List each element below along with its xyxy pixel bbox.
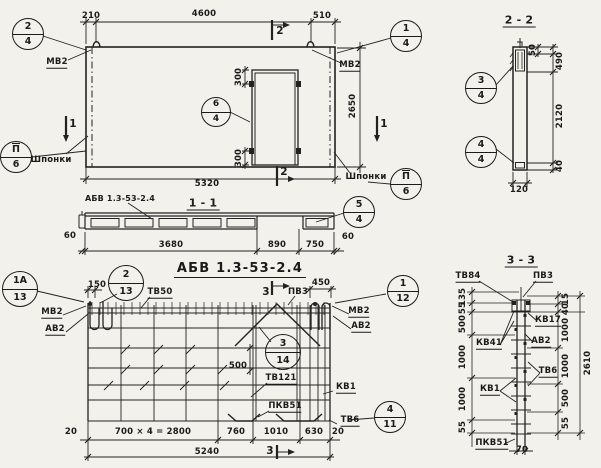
dim-60-left: 60 bbox=[64, 232, 76, 241]
label-kv41: КВ41 bbox=[476, 339, 502, 350]
balloon-3-4: 34 bbox=[465, 72, 497, 104]
section-mark-2-bottom: 2 bbox=[280, 167, 288, 178]
dim-750: 750 bbox=[306, 241, 324, 250]
label-mv2-right: МВ2 bbox=[339, 61, 360, 72]
dim-left-500: 500 bbox=[459, 315, 468, 333]
dim-210: 210 bbox=[82, 12, 100, 21]
section11-linework bbox=[78, 203, 344, 255]
dim-2650: 2650 bbox=[349, 94, 358, 118]
balloon-4-11: 411 bbox=[374, 401, 406, 433]
dim-450: 450 bbox=[312, 279, 330, 288]
label-shponki-left: Шпонки bbox=[30, 156, 71, 165]
label-kv1-33: КВ1 bbox=[480, 385, 500, 396]
section11-title: 1 - 1 bbox=[187, 198, 220, 211]
dim-1010: 1010 bbox=[264, 428, 288, 437]
balloon-1-4: 14 bbox=[390, 20, 422, 52]
balloon-2-4: 24 bbox=[12, 18, 44, 50]
dim-500: 500 bbox=[229, 362, 247, 371]
section22-linework bbox=[496, 38, 558, 187]
balloon-5-4: 54 bbox=[343, 196, 375, 228]
label-tv6-33: ТВ6 bbox=[539, 367, 558, 378]
drawing-title: АБВ 1.3-53-2.4 bbox=[174, 262, 306, 278]
dim-right-40: 40 bbox=[562, 303, 571, 315]
dim-300-bottom: 300 bbox=[235, 149, 244, 167]
balloon-1-12: 112 bbox=[387, 275, 419, 307]
dim-510: 510 bbox=[313, 12, 331, 21]
label-pv3-33: ПВ3 bbox=[533, 272, 553, 283]
dim-890: 890 bbox=[268, 241, 286, 250]
label-kv1-plan: КВ1 bbox=[336, 383, 356, 394]
section-mark-1-left: 1 bbox=[69, 119, 77, 130]
linework-svg bbox=[0, 0, 601, 468]
label-av2-33: АВ2 bbox=[531, 337, 551, 348]
drawing-sheet: 210 4600 510 2 2 1 1 МВ2 МВ2 300 300 265… bbox=[0, 0, 601, 468]
label-mv2-reinf-left: МВ2 bbox=[41, 308, 62, 319]
dim-4600: 4600 bbox=[192, 10, 216, 19]
dim-70: 70 bbox=[516, 446, 528, 455]
section-mark-1-right: 1 bbox=[380, 119, 388, 130]
dim-5320: 5320 bbox=[195, 180, 219, 189]
label-pkv51-33: ПКВ51 bbox=[475, 439, 508, 450]
label-shponki-right: Шпонки bbox=[345, 173, 386, 182]
section-mark-2-top: 2 bbox=[276, 26, 284, 37]
label-tv121: ТВ121 bbox=[265, 374, 296, 385]
label-tv6-plan: ТВ6 bbox=[341, 416, 360, 427]
dim-left-55b: 55 bbox=[459, 421, 468, 433]
balloon-6-4: 64 bbox=[201, 97, 231, 127]
label-tv50: ТВ50 bbox=[148, 288, 173, 299]
dim-right-1000b: 1000 bbox=[562, 354, 571, 378]
balloon-2-13: 213 bbox=[108, 265, 144, 301]
dim-2610-total: 2610 bbox=[584, 351, 593, 375]
dim-20-right: 20 bbox=[332, 428, 344, 437]
dim-60-right: 60 bbox=[342, 233, 354, 242]
dim-700x4: 700 × 4 = 2800 bbox=[115, 428, 191, 437]
dim-20-left: 20 bbox=[65, 428, 77, 437]
label-tv84: ТВ84 bbox=[456, 272, 481, 283]
label-pv3: ПВ3 bbox=[288, 288, 308, 297]
balloon-p-6-right: П6 bbox=[390, 168, 422, 200]
section-mark-3-bottom: 3 bbox=[266, 446, 274, 457]
dim-630: 630 bbox=[305, 428, 323, 437]
label-av2-reinf-left: АВ2 bbox=[45, 325, 65, 336]
label-kv17: КВ17 bbox=[535, 316, 561, 327]
balloon-p-6-left: П6 bbox=[0, 141, 32, 173]
dim-right-55: 55 bbox=[562, 417, 571, 429]
dim-left-1000a: 1000 bbox=[459, 345, 468, 369]
balloon-3-14: 314 bbox=[265, 334, 301, 370]
label-mv2-reinf-right: МВ2 bbox=[348, 307, 369, 318]
balloon-4-4: 44 bbox=[465, 136, 497, 168]
label-av2-reinf-right: АВ2 bbox=[351, 322, 371, 333]
beam-label: АБВ 1.3-53-2.4 bbox=[85, 195, 155, 203]
dim-50: 50 bbox=[529, 44, 538, 56]
dim-left-55a: 55 bbox=[459, 302, 468, 314]
balloon-1a-13: 1А13 bbox=[2, 271, 38, 307]
label-mv2-left: МВ2 bbox=[46, 58, 67, 69]
label-pkv51-plan: ПКВ51 bbox=[268, 402, 301, 413]
dim-5240: 5240 bbox=[195, 448, 219, 457]
dim-300-top: 300 bbox=[235, 68, 244, 86]
dim-left-1000b: 1000 bbox=[459, 387, 468, 411]
section33-title: 3 - 3 bbox=[505, 255, 538, 268]
dim-120: 120 bbox=[510, 186, 528, 195]
dim-490: 490 bbox=[556, 52, 565, 70]
dim-40: 40 bbox=[556, 160, 565, 172]
dim-3680: 3680 bbox=[159, 241, 183, 250]
section22-title: 2 - 2 bbox=[503, 15, 536, 28]
section-mark-3-top: 3 bbox=[262, 287, 270, 298]
dim-760: 760 bbox=[227, 428, 245, 437]
dim-150: 150 bbox=[88, 281, 106, 290]
dim-right-500: 500 bbox=[562, 389, 571, 407]
dim-2120: 2120 bbox=[556, 104, 565, 128]
dim-right-1000a: 1000 bbox=[562, 318, 571, 342]
